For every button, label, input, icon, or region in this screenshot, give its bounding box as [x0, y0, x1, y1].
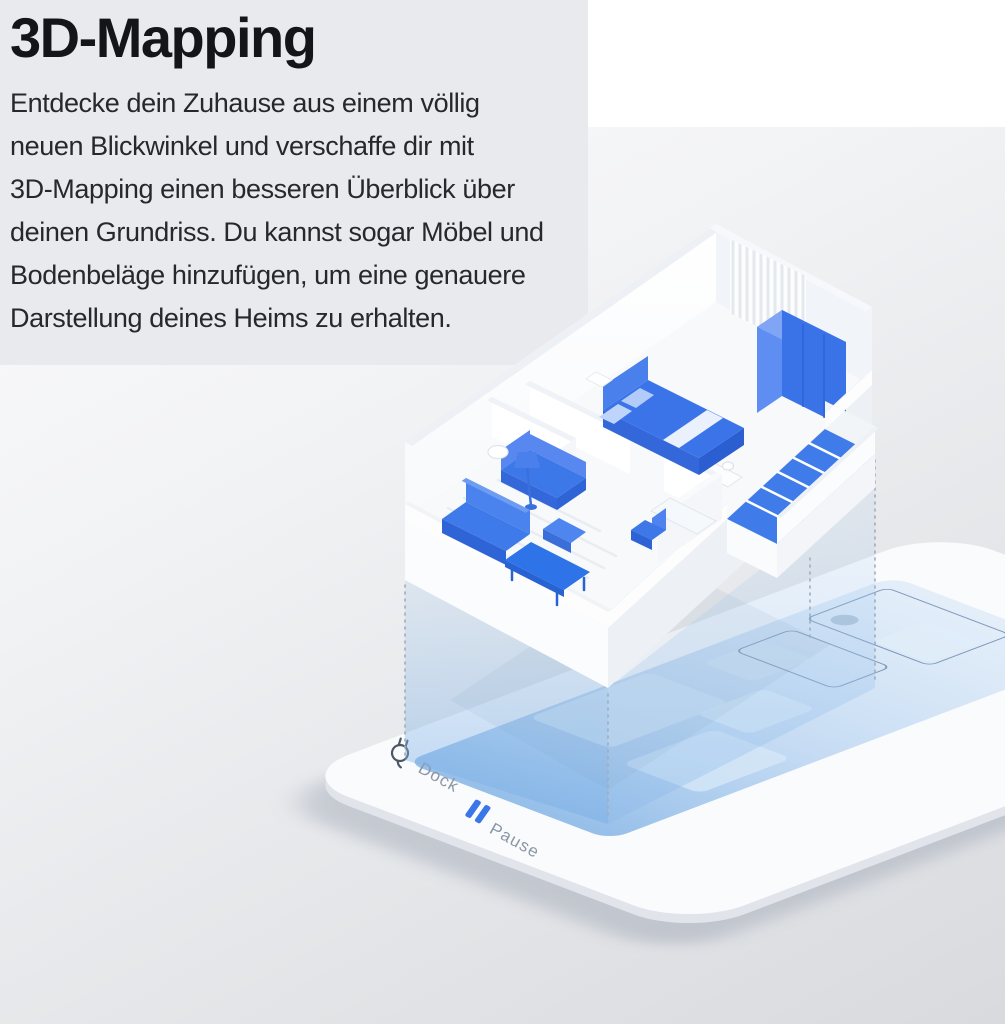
round-side-table: [488, 446, 508, 459]
page-canvas: 3D-Mapping Entdecke dein Zuhause aus ein…: [0, 0, 1005, 1024]
3d-mapping-illustration: Dock Pause: [0, 0, 1005, 1024]
